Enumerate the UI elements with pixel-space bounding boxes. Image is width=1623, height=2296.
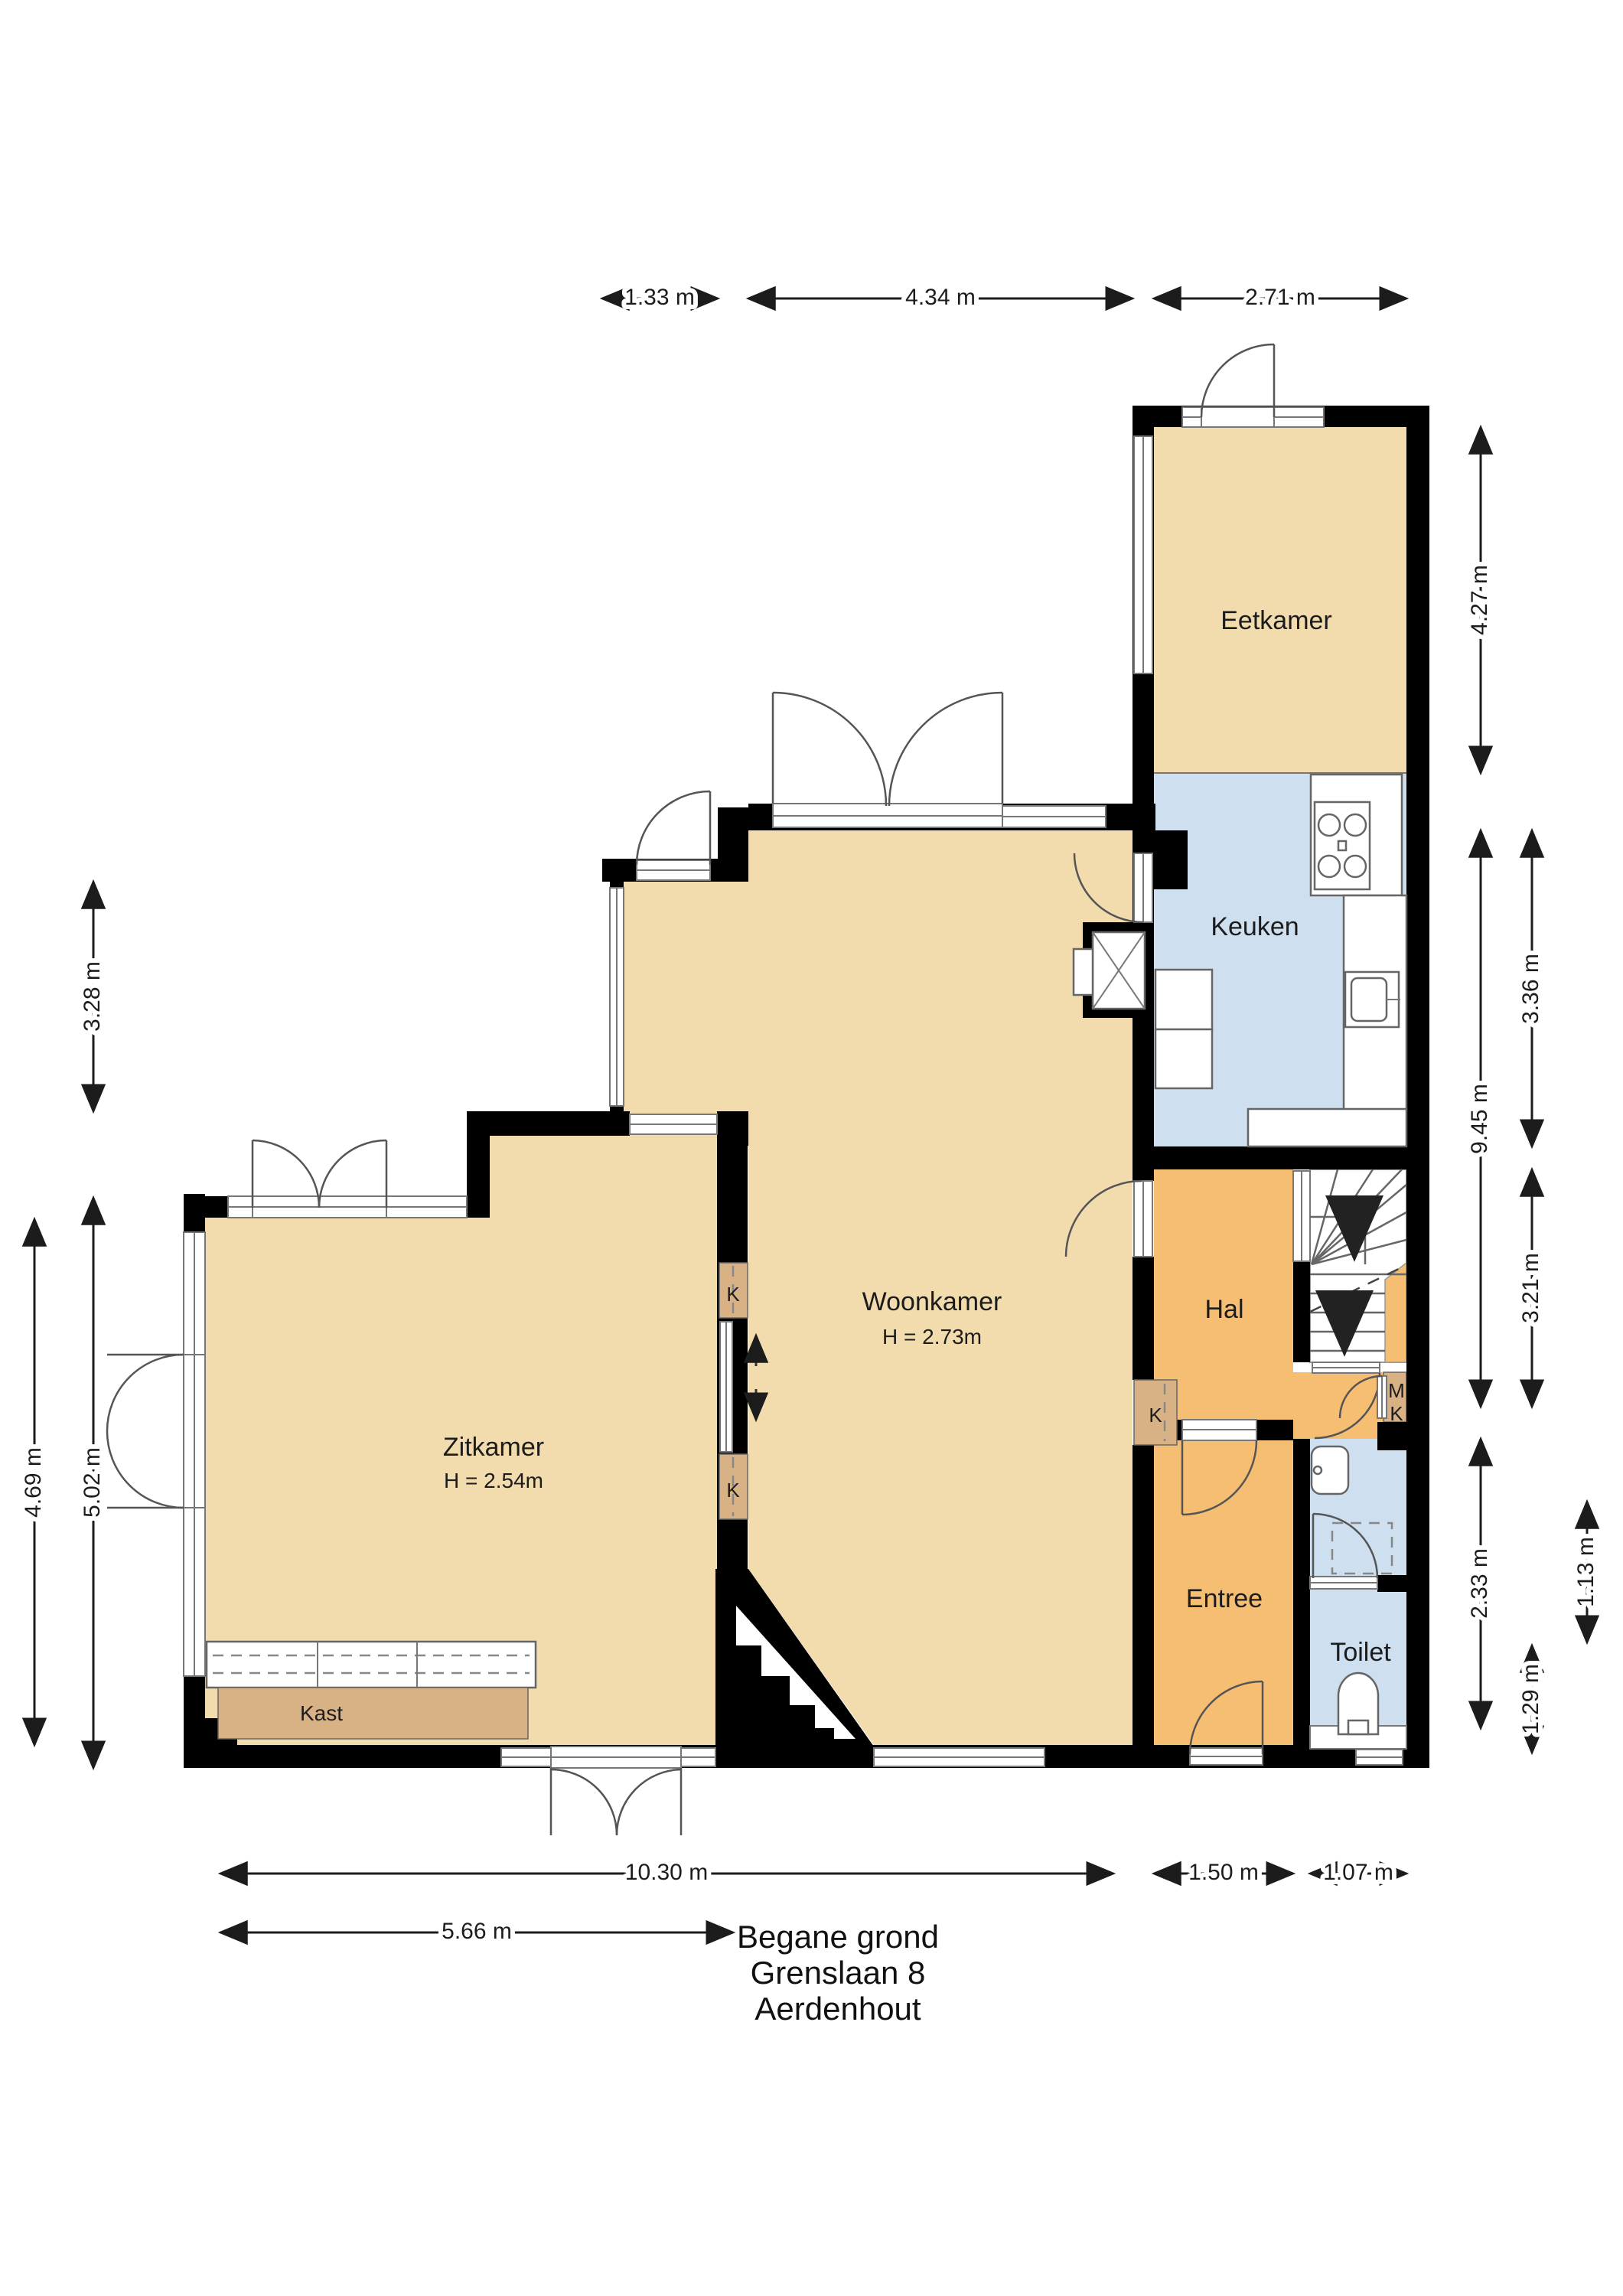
window xyxy=(1356,1750,1403,1765)
window xyxy=(1134,436,1152,673)
door-zitkamer-left xyxy=(107,1355,205,1508)
dimension: 1.29 m xyxy=(1518,1645,1543,1753)
door-eetkamer-exterior xyxy=(1201,344,1274,427)
wall-segment xyxy=(717,1111,748,1146)
wall-segment xyxy=(1293,1261,1310,1362)
kitchen-appliances xyxy=(1155,970,1212,1088)
window xyxy=(610,888,624,1106)
dimension: 4.34 m xyxy=(748,285,1133,310)
dimension: 9.45 m xyxy=(1467,830,1492,1407)
floorplan-page: Eetkamer Keuken Woonkamer H = 2.73m Zitk… xyxy=(0,0,1623,2296)
svg-text:4.34 m: 4.34 m xyxy=(905,285,976,310)
title-floor: Begane grond xyxy=(737,1919,939,1955)
svg-text:1.13 m: 1.13 m xyxy=(1573,1537,1599,1607)
svg-text:4.69 m: 4.69 m xyxy=(21,1447,46,1518)
svg-text:2.33 m: 2.33 m xyxy=(1467,1548,1492,1619)
stair-balustrade xyxy=(1293,1171,1310,1261)
kast-label: Kast xyxy=(300,1701,343,1725)
woonkamer-ceiling-label: H = 2.73m xyxy=(882,1325,982,1349)
floorplan-drawing: Eetkamer Keuken Woonkamer H = 2.73m Zitk… xyxy=(0,0,1623,2296)
svg-text:3.36 m: 3.36 m xyxy=(1518,954,1543,1024)
dimension: 1.07 m xyxy=(1310,1860,1406,1885)
dimension: 1.50 m xyxy=(1154,1860,1293,1885)
window xyxy=(1002,806,1106,827)
wall-segment xyxy=(1133,1146,1429,1169)
svg-text:1.07 m: 1.07 m xyxy=(1323,1860,1393,1885)
dimension: 1.33 m xyxy=(602,285,718,310)
wall-segment xyxy=(1133,1257,1154,1380)
wall-segment xyxy=(718,807,748,882)
keuken-label: Keuken xyxy=(1211,912,1299,941)
svg-text:5.02 m: 5.02 m xyxy=(80,1447,105,1518)
door-zitkamer-top xyxy=(253,1140,386,1218)
window xyxy=(228,1196,253,1218)
closet-k3-label: K xyxy=(1149,1404,1162,1427)
toilet-sink xyxy=(1312,1446,1348,1494)
window xyxy=(630,1114,717,1134)
wall-segment xyxy=(1406,406,1429,1768)
hal-label: Hal xyxy=(1204,1295,1243,1324)
window xyxy=(681,1748,715,1766)
dimension: 3.36 m xyxy=(1518,830,1543,1146)
closet-k2-label: K xyxy=(726,1479,740,1502)
entree-label: Entree xyxy=(1186,1584,1263,1613)
svg-text:3.28 m: 3.28 m xyxy=(80,961,105,1032)
svg-text:2.71 m: 2.71 m xyxy=(1245,285,1315,310)
window xyxy=(184,1508,205,1676)
kitchen-counter-bottom xyxy=(1248,1109,1406,1146)
svg-text:1.29 m: 1.29 m xyxy=(1518,1664,1543,1734)
title-address: Grenslaan 8 xyxy=(751,1955,926,1991)
dimension: 1.13 m xyxy=(1573,1502,1599,1642)
window xyxy=(386,1196,467,1218)
toilet-bowl xyxy=(1338,1673,1378,1734)
svg-text:1.33 m: 1.33 m xyxy=(624,285,695,310)
svg-text:1.50 m: 1.50 m xyxy=(1188,1860,1259,1885)
svg-text:9.45 m: 9.45 m xyxy=(1467,1084,1492,1154)
plan-title: Begane grond Grenslaan 8 Aerdenhout xyxy=(737,1919,939,2027)
window xyxy=(501,1748,551,1766)
dimension: 5.02 m xyxy=(80,1198,105,1768)
interior-window xyxy=(720,1322,732,1452)
eetkamer-label: Eetkamer xyxy=(1221,606,1332,635)
meterkast-m-label: M xyxy=(1388,1379,1405,1402)
toilet-label: Toilet xyxy=(1330,1638,1391,1667)
dimension: 2.71 m xyxy=(1154,285,1406,310)
wall-segment xyxy=(1133,1445,1154,1768)
dimension: 3.21 m xyxy=(1518,1169,1543,1407)
window xyxy=(1182,407,1201,427)
svg-text:4.27 m: 4.27 m xyxy=(1467,565,1492,635)
door-woonkamer-french xyxy=(773,693,1002,827)
closet-k1-label: K xyxy=(726,1283,740,1306)
kitchen-counter xyxy=(1344,895,1406,1110)
woonkamer-label: Woonkamer xyxy=(862,1287,1002,1316)
window xyxy=(184,1232,205,1355)
stair-wedge xyxy=(1385,1263,1406,1362)
door-zitkamer-bottom xyxy=(551,1746,681,1835)
kast-cupboard xyxy=(207,1642,536,1739)
wall-segment xyxy=(1293,1439,1310,1768)
svg-text:3.21 m: 3.21 m xyxy=(1518,1253,1543,1323)
stove xyxy=(1311,775,1402,895)
wall-segment xyxy=(1377,1575,1406,1592)
dimension: 2.33 m xyxy=(1467,1439,1492,1728)
window xyxy=(874,1748,1045,1766)
svg-text:10.30 m: 10.30 m xyxy=(625,1860,708,1885)
door-woonkamer-side xyxy=(637,791,710,880)
dimension: 5.66 m xyxy=(220,1919,733,1944)
dimension: 4.27 m xyxy=(1467,427,1492,773)
dimension: 4.69 m xyxy=(21,1219,46,1745)
wall-segment xyxy=(1154,830,1188,889)
meterkast-k-label: K xyxy=(1390,1402,1403,1425)
svg-text:5.66 m: 5.66 m xyxy=(442,1919,512,1944)
zitkamer-ceiling-label: H = 2.54m xyxy=(444,1469,543,1492)
wall-segment xyxy=(467,1111,630,1136)
dimension: 10.30 m xyxy=(220,1860,1113,1885)
room-eetkamer-floor xyxy=(1154,427,1406,773)
zitkamer-label: Zitkamer xyxy=(443,1433,544,1462)
window xyxy=(1274,407,1324,427)
title-city: Aerdenhout xyxy=(754,1991,921,2027)
dimension: 3.28 m xyxy=(80,882,105,1111)
wall-segment xyxy=(1377,1422,1429,1450)
